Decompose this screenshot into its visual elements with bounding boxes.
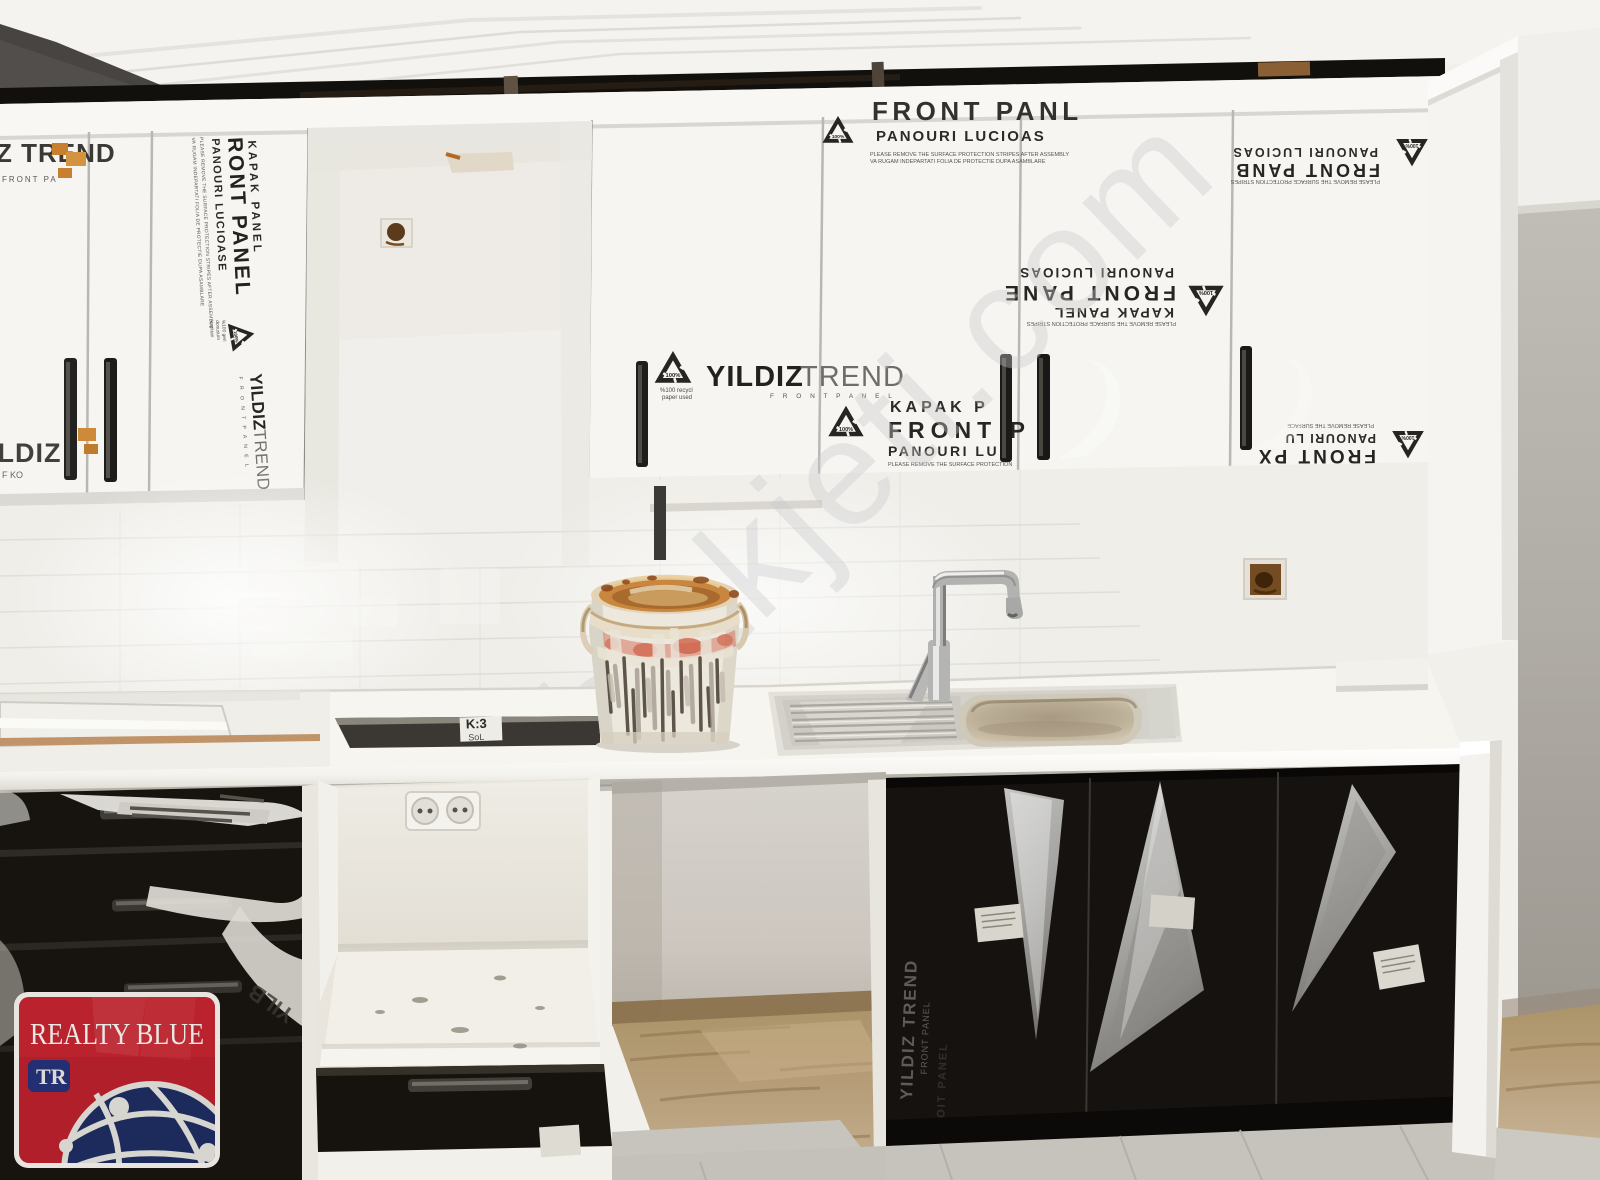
svg-text:FRONT PANL: FRONT PANL [872, 96, 1083, 126]
svg-text:paper used: paper used [662, 395, 692, 401]
svg-text:YILDIZ: YILDIZ [0, 438, 62, 468]
svg-text:donusum: donusum [214, 320, 221, 340]
svg-text:REALTY BLUE: REALTY BLUE [30, 1016, 204, 1051]
svg-text:TR: TR [36, 1064, 68, 1089]
svg-text:FRONT PA: FRONT PA [2, 175, 58, 184]
svg-text:FRONT PANB: FRONT PANB [1233, 160, 1380, 180]
svg-text:YILDIZ: YILDIZ [706, 361, 804, 393]
svg-text:FRONT PX: FRONT PX [1256, 445, 1376, 466]
svg-text:VA RUGAM INDEPARTATI FOLIA DE: VA RUGAM INDEPARTATI FOLIA DE PROTECTIE … [870, 159, 1046, 165]
svg-text:PLEASE REMOVE THE SURFACE PROT: PLEASE REMOVE THE SURFACE PROTECTION STR… [870, 152, 1069, 158]
svg-text:PANOURI LUCIOAS: PANOURI LUCIOAS [876, 128, 1046, 145]
svg-text:PANOURI LUCIOAS: PANOURI LUCIOAS [1232, 145, 1378, 159]
svg-text:YILDIZ: YILDIZ [246, 373, 269, 431]
svg-text:K:3: K:3 [466, 716, 487, 732]
svg-text:%100 geri: %100 geri [220, 320, 227, 342]
svg-text:F KO: F KO [2, 470, 23, 480]
svg-text:SoL: SoL [468, 732, 484, 743]
svg-text:kagittan: kagittan [208, 320, 215, 337]
svg-text:%100 recycl: %100 recycl [660, 388, 693, 394]
